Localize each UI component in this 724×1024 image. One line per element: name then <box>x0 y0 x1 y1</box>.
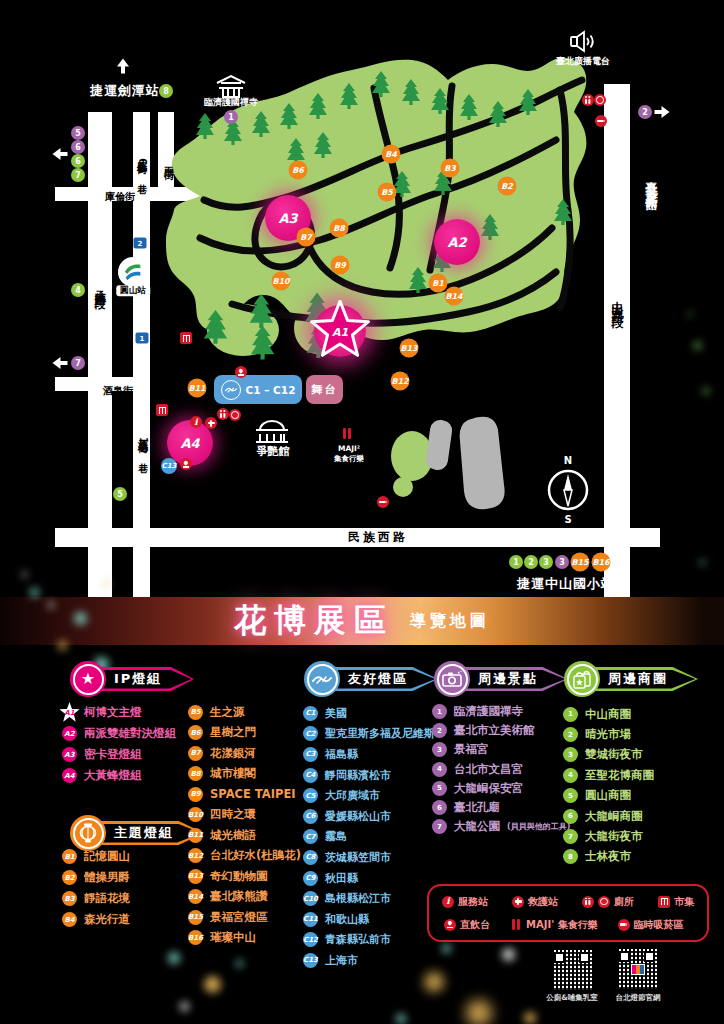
toilet-icon <box>582 896 594 908</box>
facility-row-1: 服務站 救護站 廁所 市集 <box>442 895 694 909</box>
direction-arrow-icon <box>53 148 68 160</box>
legend-item: C1 美國 <box>303 703 435 724</box>
facility-label: 市集 <box>674 895 694 909</box>
sight-marker: 5 <box>71 126 85 140</box>
legend-item: 5 大龍峒保安宮 <box>432 779 570 798</box>
legend-item: A2 兩派雙雄對決燈組 <box>62 723 176 744</box>
item-label: 中山商圈 <box>585 707 631 722</box>
map-label: 民族西路 <box>348 531 408 544</box>
b-marker: B7 <box>297 228 316 247</box>
item-badge: C4 <box>303 768 318 783</box>
qr-code-toilet-nursing <box>552 950 592 990</box>
shop-marker: 4 <box>71 283 85 297</box>
item-badge: B8 <box>188 766 203 781</box>
page-subtitle: 導覽地圖 <box>410 611 490 632</box>
map-label: 臨濟護國禪寺 <box>204 98 258 108</box>
map-label: 中山北路三段 <box>610 291 623 309</box>
legend-shops-items: 1 中山商圈 2 晴光市場 3 雙城街夜市 4 至聖花博商圈 5 圓山商圈 <box>563 704 654 867</box>
b-marker: B4 <box>382 145 401 164</box>
map-label: 圓山站 <box>116 285 150 296</box>
bokeh-light <box>104 581 109 586</box>
item-badge: 6 <box>563 809 578 824</box>
item-badge: C11 <box>303 912 318 927</box>
item-badge: 4 <box>563 768 578 783</box>
maji-icon <box>510 919 522 931</box>
facility-label: 服務站 <box>458 895 488 909</box>
legend-title-friendly: 友好燈區 <box>332 667 438 691</box>
sight-marker: 6 <box>71 140 85 154</box>
legend-item: B14 臺北隊熊讚 <box>188 887 301 908</box>
item-label: 士林夜市 <box>585 849 631 864</box>
map-label: 庫倫街 <box>105 191 135 202</box>
item-badge: A4 <box>62 768 77 783</box>
item-badge: B12 <box>188 848 203 863</box>
legend-item: B10 四時之環 <box>188 805 301 826</box>
b-marker: B14 <box>445 287 464 306</box>
legend-item: 1 臨濟護國禪寺 <box>432 702 570 721</box>
item-label: 愛媛縣松山市 <box>325 809 391 824</box>
direction-arrow-icon <box>53 357 68 369</box>
bokeh-light <box>180 1002 189 1011</box>
bokeh-light <box>442 944 451 953</box>
legend-item: 6 大龍峒商圈 <box>563 806 654 826</box>
a-marker: A2 <box>434 219 480 265</box>
handshake-icon <box>304 661 340 697</box>
sight-marker: 3 <box>555 555 569 569</box>
legend-item: 7 大龍公園 (貝貝與他的工具) <box>432 817 570 836</box>
legend-item: C5 大邱廣域市 <box>303 785 435 806</box>
station-exit-badge: 1 <box>136 333 149 344</box>
item-badge: B3 <box>62 891 77 906</box>
legend-title-ip: IP燈組 <box>98 667 194 691</box>
facility-item: 直飲台 <box>444 918 490 932</box>
shop-marker: 2 <box>524 555 538 569</box>
item-badge: C2 <box>303 726 318 741</box>
qr-code-official-site <box>617 949 657 989</box>
market-icon <box>156 404 168 416</box>
item-badge: B9 <box>188 787 203 802</box>
svg-text:A1: A1 <box>332 326 349 339</box>
legend-item: 1 中山商圈 <box>563 704 654 724</box>
bokeh-light <box>502 948 515 961</box>
bokeh-light <box>700 560 705 565</box>
item-label: 大龍峒商圈 <box>585 809 643 824</box>
legend-item: C4 靜岡縣濱松市 <box>303 765 435 786</box>
item-badge: B7 <box>188 746 203 761</box>
item-label: 靜岡縣濱松市 <box>325 768 391 783</box>
legend-item: 4 至聖花博商圈 <box>563 765 654 785</box>
map-label: 庫倫街61巷 <box>137 152 148 178</box>
legend-item: C9 秋田縣 <box>303 868 435 889</box>
item-label: 大龍公園 <box>454 819 500 834</box>
legend-item: 8 士林夜市 <box>563 847 654 867</box>
shop-marker: 8 <box>159 84 173 98</box>
bokeh-light <box>74 612 87 625</box>
item-label: 城光樹語 <box>210 828 256 843</box>
item-label: 森光行道 <box>84 912 130 927</box>
shop-marker: 5 <box>113 487 127 501</box>
handshake-icon <box>221 380 241 400</box>
item-badge: C5 <box>303 788 318 803</box>
legend-item: B12 台北好水(杜鵑花) <box>188 846 301 867</box>
legend-item: C6 愛媛縣松山市 <box>303 806 435 827</box>
b-marker: B11 <box>188 379 207 398</box>
item-label: 花漾銀河 <box>210 746 256 761</box>
compass: N S <box>541 452 595 526</box>
a1-star-icon: A1 <box>309 300 371 362</box>
b-marker: B6 <box>289 161 308 180</box>
facility-label: MAJI' 集食行樂 <box>526 918 598 932</box>
access-icon <box>594 94 606 106</box>
item-label: 四時之環 <box>210 807 256 822</box>
b-marker: B10 <box>272 272 291 291</box>
sight-marker: 2 <box>638 105 652 119</box>
item-badge: B6 <box>188 725 203 740</box>
station-exit-badge: 2 <box>134 238 147 249</box>
bokeh-light <box>58 641 67 650</box>
b-marker: B16 <box>592 553 611 572</box>
item-label: 生之源 <box>210 705 245 720</box>
legend-ip-items: A1 柯博文主燈 A2 兩派雙雄對決燈組 A3 密卡登燈組 A4 大黃蜂燈組 <box>62 702 176 786</box>
legend-title-sights: 周邊景點 <box>462 667 568 691</box>
bokeh-light <box>22 572 27 577</box>
star-icon: ★ <box>70 661 106 697</box>
shopping-bag-icon <box>564 661 600 697</box>
map-label: MAJI² <box>338 445 360 453</box>
facility-row-2: 直飲台 MAJI' 集食行樂 臨時吸菸區 <box>442 918 694 932</box>
legend-item: 4 台北市文昌宮 <box>432 760 570 779</box>
facility-item: MAJI' 集食行樂 <box>510 918 598 932</box>
item-badge: 3 <box>432 742 447 757</box>
legend-item: B7 花漾銀河 <box>188 743 301 764</box>
legend-item: 7 大龍街夜市 <box>563 826 654 846</box>
item-label: 景福宮 <box>454 742 489 757</box>
item-label: 上海市 <box>325 953 358 968</box>
legend-item: C10 島根縣松江市 <box>303 888 435 909</box>
item-label: SPACE TAIPEI <box>210 787 296 801</box>
bokeh-light <box>466 1000 492 1024</box>
item-badge: 2 <box>563 727 578 742</box>
b-marker: B8 <box>330 219 349 238</box>
legend-item: 5 圓山商圈 <box>563 786 654 806</box>
facility-item: 市集 <box>658 895 694 909</box>
item-label: 奇幻動物園 <box>210 869 268 884</box>
facility-item: 救護站 <box>512 895 558 909</box>
direction-arrow-icon <box>655 106 670 118</box>
access-icon <box>598 896 610 908</box>
qr-label: 台北燈節官網 <box>603 993 673 1003</box>
item-label: 星樹之門 <box>210 725 256 740</box>
smoke-icon <box>595 115 607 127</box>
item-badge: C3 <box>303 747 318 762</box>
item-label: 大邱廣域市 <box>325 788 380 803</box>
facility-label: 廁所 <box>614 895 634 909</box>
map-label: 酒泉街 <box>103 385 133 396</box>
item-badge: 8 <box>563 849 578 864</box>
legend-item: C12 青森縣弘前市 <box>303 930 435 951</box>
item-label: 台北好水(杜鵑花) <box>210 848 301 863</box>
water-icon <box>180 458 192 470</box>
legend-item: B2 體操男爵 <box>62 867 130 888</box>
item-badge: A1 <box>62 705 77 720</box>
legend-sights-items: 1 臨濟護國禪寺 2 臺北市立美術館 3 景福宮 4 台北市文昌宮 <box>432 702 570 836</box>
b-marker: B3 <box>441 159 460 178</box>
legend-item: 2 晴光市場 <box>563 724 654 744</box>
item-badge: B14 <box>188 889 203 904</box>
legend-item: B15 景福宮燈區 <box>188 907 301 928</box>
legend-item: B13 奇幻動物園 <box>188 866 301 887</box>
info-icon <box>442 896 454 908</box>
legend-item: C13 上海市 <box>303 950 435 971</box>
toilet-icon <box>582 94 594 106</box>
aid-icon <box>512 896 524 908</box>
stage-area: 舞台 <box>306 375 343 404</box>
sight-marker: 7 <box>71 356 85 370</box>
svg-text:N: N <box>564 455 572 466</box>
item-label: 兩派雙雄對決燈組 <box>84 726 176 741</box>
map: C1 – C12 舞台 <box>0 0 724 597</box>
item-label: 秋田縣 <box>325 871 358 886</box>
water-icon <box>235 366 247 378</box>
item-badge: B13 <box>188 869 203 884</box>
map-label: 臺北廣播電台 <box>556 57 610 67</box>
maji-icon <box>341 427 353 439</box>
bokeh-light <box>30 588 39 597</box>
smoke-icon <box>618 919 630 931</box>
shop-marker: 7 <box>71 168 85 182</box>
map-label: 玉門街 <box>164 158 175 164</box>
item-label: 茨城縣笠間市 <box>325 850 391 865</box>
facility-item: 廁所 <box>582 895 634 909</box>
legend-theme-items-right: B5 生之源 B6 星樹之門 B7 花漾銀河 B8 城市樓閣 B9 SPACE … <box>188 702 301 948</box>
map-label: 集食行樂 <box>334 455 364 463</box>
legend-title-shops: 周邊商圈 <box>592 667 698 691</box>
legend-item: 6 臺北孔廟 <box>432 798 570 817</box>
legend-item: A4 大黃蜂燈組 <box>62 765 176 786</box>
shop-marker: 6 <box>71 154 85 168</box>
direction-arrow-icon <box>117 59 129 74</box>
item-badge: C9 <box>303 871 318 886</box>
facility-legend-box: 服務站 救護站 廁所 市集 <box>427 884 709 942</box>
item-label: 福島縣 <box>325 747 358 762</box>
item-label: 臺北市立美術館 <box>454 723 535 738</box>
bokeh-light <box>236 960 243 967</box>
legend-item: A3 密卡登燈組 <box>62 744 176 765</box>
map-label: 酒泉街10巷 <box>138 431 149 457</box>
bokeh-light <box>688 312 692 316</box>
item-badge: C8 <box>303 850 318 865</box>
item-badge: A3 <box>62 747 77 762</box>
marker-a1-main-lantern: A1 <box>309 300 371 362</box>
map-label: 捷運劍潭站 <box>90 84 160 98</box>
item-label: 青森縣弘前市 <box>325 932 391 947</box>
item-badge: C13 <box>303 953 318 968</box>
qr-center-logo <box>631 964 645 975</box>
b-marker: B9 <box>331 256 350 275</box>
item-label: 城市樓閣 <box>210 766 256 781</box>
item-label: 大黃蜂燈組 <box>84 768 142 783</box>
bokeh-light <box>396 1014 406 1024</box>
legend-item: 3 景福宮 <box>432 740 570 759</box>
legend-item: B5 生之源 <box>188 702 301 723</box>
item-badge: B11 <box>188 828 203 843</box>
b-marker: B1 <box>429 274 448 293</box>
facility-item: 臨時吸菸區 <box>618 918 684 932</box>
item-badge: B5 <box>188 705 203 720</box>
bokeh-light <box>168 952 180 964</box>
sight-marker: 1 <box>224 110 238 124</box>
legend-item: B16 璀璨中山 <box>188 928 301 949</box>
facility-label: 臨時吸菸區 <box>634 918 684 932</box>
item-badge: 5 <box>563 788 578 803</box>
item-badge: 7 <box>432 819 447 834</box>
info-icon <box>190 416 202 428</box>
camera-icon <box>434 661 470 697</box>
map-label: 捷運中山國小站 <box>517 577 615 591</box>
page-title: 花博展區 <box>234 599 394 643</box>
item-label: 和歌山縣 <box>325 912 369 927</box>
item-badge: 4 <box>432 762 447 777</box>
legend-item: A1 柯博文主燈 <box>62 702 176 723</box>
friendly-zone-range: C1 – C12 <box>246 384 296 396</box>
bokeh-light <box>703 388 709 394</box>
pavilion-icon <box>251 418 293 444</box>
water-icon <box>444 919 456 931</box>
bokeh-light <box>524 1012 536 1024</box>
map-label: 臺北市立美術館 <box>644 172 657 193</box>
item-note: (貝貝與他的工具) <box>507 821 570 832</box>
legend-item: B11 城光樹語 <box>188 825 301 846</box>
item-badge: 3 <box>563 747 578 762</box>
bokeh-light <box>48 602 54 608</box>
item-label: 美國 <box>325 706 347 721</box>
legend-friendly-items: C1 美國 C2 聖克里斯多福及尼維斯 C3 福島縣 C4 靜岡縣濱松市 C5 … <box>303 703 435 971</box>
title-banner: 花博展區 導覽地圖 <box>0 597 724 645</box>
bokeh-light <box>204 976 221 993</box>
access-icon <box>229 409 241 421</box>
item-badge: B4 <box>62 912 77 927</box>
b-marker: B2 <box>498 177 517 196</box>
facility-item: 服務站 <box>442 895 488 909</box>
item-label: 霧島 <box>325 829 347 844</box>
legend-item: C8 茨城縣笠間市 <box>303 847 435 868</box>
legend-item: C11 和歌山縣 <box>303 909 435 930</box>
bokeh-light <box>694 342 701 349</box>
legend-item: B3 靜語花境 <box>62 888 130 909</box>
map-label: 承德路三段 <box>93 281 105 291</box>
bokeh-light <box>424 972 444 992</box>
facility-label: 救護站 <box>528 895 558 909</box>
item-label: 大龍街夜市 <box>585 829 643 844</box>
item-label: 聖克里斯多福及尼維斯 <box>325 726 435 741</box>
item-badge: 6 <box>432 800 447 815</box>
map-label: 爭艷館 <box>257 446 290 458</box>
item-badge: 7 <box>563 829 578 844</box>
legend-item: C7 霧島 <box>303 827 435 848</box>
item-label: 雙城街夜市 <box>585 747 643 762</box>
facility-label: 直飲台 <box>460 918 490 932</box>
item-badge: 1 <box>432 704 447 719</box>
legend-item: 2 臺北市立美術館 <box>432 721 570 740</box>
item-badge: 2 <box>432 723 447 738</box>
aid-icon <box>205 417 217 429</box>
item-label: 景福宮燈區 <box>210 910 268 925</box>
item-badge: B10 <box>188 807 203 822</box>
mrt-yuanshan-logo <box>118 257 148 287</box>
item-label: 體操男爵 <box>84 870 130 885</box>
legend-item: B4 森光行道 <box>62 909 130 930</box>
item-badge: C12 <box>303 932 318 947</box>
b-marker: B12 <box>391 372 410 391</box>
item-label: 至聖花博商圈 <box>585 768 654 783</box>
lantern-festival-map-poster: C1 – C12 舞台 <box>0 0 724 1024</box>
item-badge: A2 <box>62 726 77 741</box>
item-label: 靜語花境 <box>84 891 130 906</box>
item-label: 島根縣松江市 <box>325 891 391 906</box>
radio-speaker-icon <box>569 30 597 54</box>
item-label: 大龍峒保安宮 <box>454 781 523 796</box>
item-badge: B16 <box>188 930 203 945</box>
legend-item: B8 城市樓閣 <box>188 764 301 785</box>
item-badge: B1 <box>62 849 77 864</box>
toilet-icon <box>217 408 229 420</box>
qr-label: 公廁&哺集乳室 <box>537 993 607 1003</box>
item-badge: B15 <box>188 910 203 925</box>
b-marker: B13 <box>400 339 419 358</box>
b-marker: B15 <box>571 553 590 572</box>
item-label: 晴光市場 <box>585 727 631 742</box>
item-badge: C7 <box>303 829 318 844</box>
market-icon <box>658 896 670 908</box>
legend-item: B9 SPACE TAIPEI <box>188 784 301 805</box>
item-badge: B2 <box>62 870 77 885</box>
item-badge: C6 <box>303 809 318 824</box>
item-label: 臺北隊熊讚 <box>210 889 268 904</box>
legend-item: B6 星樹之門 <box>188 723 301 744</box>
item-badge: 1 <box>563 707 578 722</box>
b-marker: B5 <box>378 183 397 202</box>
item-badge: 5 <box>432 781 447 796</box>
item-label: 記憶圓山 <box>84 849 130 864</box>
legend-theme-items-left: B1 記憶圓山 B2 體操男爵 B3 靜語花境 B4 森光行道 <box>62 846 130 930</box>
item-badge: C1 <box>303 706 318 721</box>
c-marker: C13 <box>161 458 177 474</box>
svg-text:S: S <box>564 514 571 525</box>
item-label: 柯博文主燈 <box>84 705 142 720</box>
legend-item: 3 雙城街夜市 <box>563 745 654 765</box>
friendly-zone-area: C1 – C12 <box>214 375 302 404</box>
item-label: 圓山商圈 <box>585 788 631 803</box>
shop-marker: 1 <box>509 555 523 569</box>
market-icon <box>180 332 192 344</box>
item-label: 臺北孔廟 <box>454 800 500 815</box>
item-label: 密卡登燈組 <box>84 747 142 762</box>
legend-item: B1 記憶圓山 <box>62 846 130 867</box>
item-label: 台北市文昌宮 <box>454 762 523 777</box>
smoke-icon <box>377 496 389 508</box>
item-label: 臨濟護國禪寺 <box>454 704 523 719</box>
legend-item: C2 聖克里斯多福及尼維斯 <box>303 724 435 745</box>
item-badge: C10 <box>303 891 318 906</box>
shop-marker: 3 <box>539 555 553 569</box>
item-label: 璀璨中山 <box>210 930 256 945</box>
legend-item: C3 福島縣 <box>303 744 435 765</box>
